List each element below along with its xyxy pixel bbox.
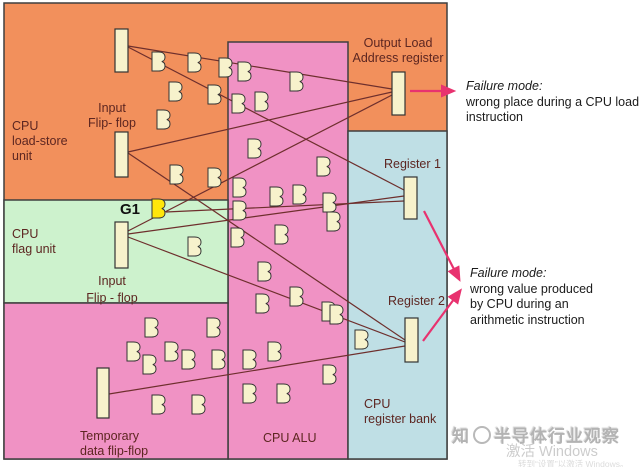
label-cpu-load-store-unit: CPU load-store unit: [12, 119, 68, 164]
load-store-output-flipflop: [115, 29, 128, 72]
logic-gate-icon: [212, 350, 225, 369]
failure-mode-load-annotation: Failure mode: wrong place during a CPU l…: [466, 79, 640, 126]
label-cpu-flag-unit: CPU flag unit: [12, 227, 56, 257]
activate-windows-hint: 转到“设置”以激活 Windows。: [518, 458, 629, 467]
logic-gate-icon: [270, 187, 283, 206]
logic-gate-icon: [330, 305, 343, 324]
logic-gate-icon: [327, 212, 340, 231]
logic-gate-icon: [169, 82, 182, 101]
register-1: [404, 177, 417, 219]
diagram-canvas: [0, 0, 640, 467]
logic-gate-icon: [238, 62, 251, 81]
logic-gate-icon: [268, 342, 281, 361]
logic-gate-icon: [323, 193, 336, 212]
logic-gate-icon: [152, 395, 165, 414]
logic-gate-icon: [208, 85, 221, 104]
failure-mode-load-body: wrong place during a CPU load instructio…: [466, 95, 640, 126]
label-cpu-register-bank: CPU register bank: [364, 397, 436, 427]
logic-gate-icon: [243, 350, 256, 369]
logic-gate-icon: [231, 228, 244, 247]
logic-gate-icon: [317, 157, 330, 176]
logic-gate-icon: [355, 330, 368, 349]
logic-gate-icon: [165, 342, 178, 361]
failure-mode-arith-annotation: Failure mode: wrong value produced by CP…: [470, 266, 640, 328]
logic-gate-icon: [275, 225, 288, 244]
logic-gate-icon: [145, 318, 158, 337]
logic-gate-icon: [170, 165, 183, 184]
label-input-flipflop-flag: Input Flip - flop: [78, 273, 146, 307]
label-register-2: Register 2: [388, 294, 445, 309]
logic-gate-icon: [152, 52, 165, 71]
logic-gate-icon: [208, 168, 221, 187]
logic-gate-icon: [277, 384, 290, 403]
label-temporary-data-flipflop: Temporary data flip-flop: [80, 429, 148, 459]
label-input-flipflop-top: Input Flip- flop: [78, 101, 146, 131]
logic-gate-icon: [188, 53, 201, 72]
label-cpu-alu: CPU ALU: [263, 431, 317, 446]
logic-gate-icon: [243, 384, 256, 403]
watermark-logo-icon: [473, 426, 491, 444]
output-load-address-register: [392, 72, 405, 115]
failure-mode-arith-title: Failure mode:: [470, 266, 640, 282]
logic-gate-icon: [233, 201, 246, 220]
label-g1-gate: G1: [120, 201, 140, 218]
logic-gate-icon: [188, 237, 201, 256]
logic-gate-icon: [219, 58, 232, 77]
struck-gate-g1-icon: [152, 199, 165, 218]
logic-gate-icon: [143, 355, 156, 374]
logic-gate-icon: [293, 185, 306, 204]
logic-gate-icon: [192, 395, 205, 414]
register-2: [405, 318, 418, 362]
cpu-failure-modes-diagram: CPU load-store unit Input Flip- flop G1 …: [0, 0, 640, 467]
temporary-data-flipflop: [97, 368, 109, 418]
logic-gate-icon: [258, 262, 271, 281]
logic-gate-icon: [290, 72, 303, 91]
failure-mode-arith-body: wrong value produced by CPU during an ar…: [470, 282, 640, 329]
watermark-prefix: 知: [452, 422, 470, 447]
logic-gate-icon: [323, 365, 336, 384]
logic-gate-icon: [256, 294, 269, 313]
logic-gate-icon: [255, 92, 268, 111]
logic-gate-icon: [127, 342, 140, 361]
label-register-1: Register 1: [384, 157, 441, 172]
flag-unit-input-flipflop: [115, 222, 128, 268]
logic-gate-icon: [207, 318, 220, 337]
logic-gate-icon: [232, 94, 245, 113]
failure-mode-load-title: Failure mode:: [466, 79, 640, 95]
logic-gate-icon: [248, 139, 261, 158]
logic-gate-icon: [182, 350, 195, 369]
label-output-load-address-register: Output Load Address register: [350, 36, 446, 66]
logic-gate-icon: [290, 287, 303, 306]
load-store-input-flipflop: [115, 132, 128, 177]
logic-gate-icon: [233, 178, 246, 197]
logic-gate-icon: [157, 110, 170, 129]
